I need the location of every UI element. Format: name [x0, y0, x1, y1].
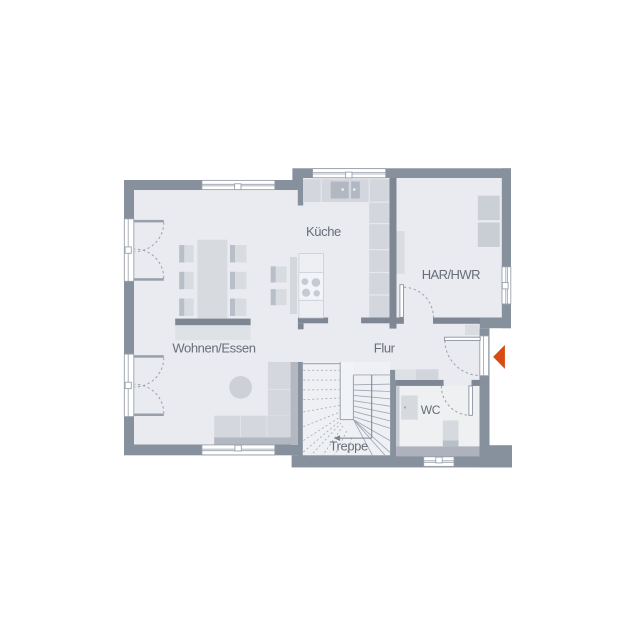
svg-text:Treppe: Treppe	[330, 439, 368, 454]
svg-text:Flur: Flur	[374, 340, 396, 355]
svg-text:HAR/HWR: HAR/HWR	[422, 267, 480, 282]
svg-text:Küche: Küche	[306, 224, 341, 239]
svg-text:Wohnen/Essen: Wohnen/Essen	[172, 340, 255, 355]
svg-text:WC: WC	[421, 403, 441, 417]
